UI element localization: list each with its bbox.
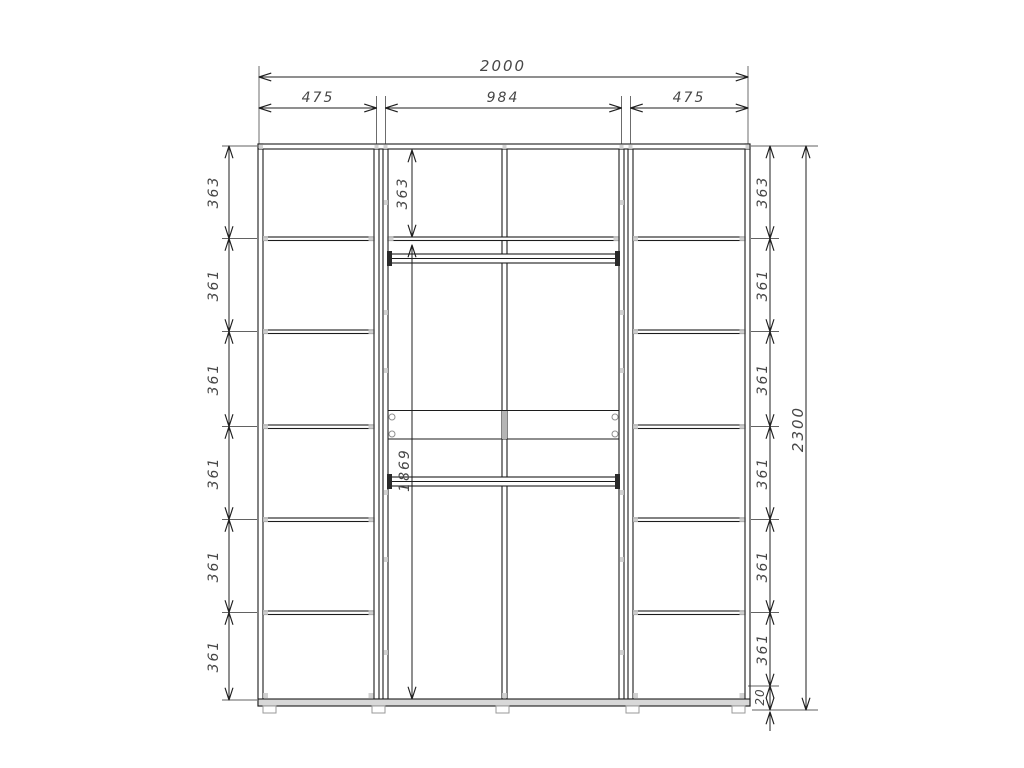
- left-column-shelves: [263, 237, 374, 615]
- drawing-canvas: 2000 475 984 475 363 361 361 361 361 361…: [0, 0, 1024, 768]
- dim-label-left-4: 361: [206, 457, 222, 490]
- middle-left-panel: [383, 149, 388, 699]
- right-column-left-panel: [628, 149, 633, 699]
- dim-label-right-4: 361: [755, 457, 771, 490]
- dim-label-right-1: 363: [755, 176, 771, 209]
- dim-label-right-5: 361: [755, 550, 771, 583]
- dim-label-width-total: 2000: [480, 57, 526, 75]
- dim-label-right-6: 361: [755, 633, 771, 666]
- dim-label-middle-hanging: 1869: [397, 448, 413, 492]
- cam-lock-icon: [389, 431, 395, 437]
- shaded-divider-segment: [502, 411, 507, 439]
- middle-right-panel: [619, 149, 624, 699]
- cabinet-feet: [263, 706, 745, 713]
- dim-label-left-5: 361: [206, 550, 222, 583]
- dim-label-height-total: 2300: [789, 406, 807, 452]
- left-column-right-panel: [374, 149, 379, 699]
- stiffener-band: [388, 411, 619, 440]
- dim-label-left-2: 361: [206, 269, 222, 302]
- dimension-overall-height: 2300: [789, 146, 807, 710]
- dimensions-right-chain: 363 361 361 361 361 361 20: [748, 146, 818, 731]
- dim-label-left-6: 361: [206, 640, 222, 673]
- dimensions-top: 2000 475 984 475: [259, 57, 748, 144]
- dim-label-width-right: 475: [673, 90, 706, 106]
- dim-label-width-middle: 984: [487, 90, 520, 106]
- bottom-panel: [258, 699, 750, 706]
- rod-bracket-right: [615, 251, 620, 266]
- middle-top-shelf: [388, 237, 619, 241]
- cam-lock-icon: [389, 414, 395, 420]
- cabinet-structure: [258, 144, 750, 713]
- rod-bracket-left: [387, 251, 392, 266]
- dim-label-left-1: 363: [206, 176, 222, 209]
- dimensions-left-chain: 363 361 361 361 361 361: [206, 146, 257, 700]
- dim-label-width-left: 475: [302, 90, 335, 106]
- dim-label-bottom-clearance: 20: [753, 688, 767, 705]
- dim-label-left-3: 361: [206, 363, 222, 396]
- dim-label-right-3: 361: [755, 363, 771, 396]
- dim-label-middle-top: 363: [395, 177, 411, 210]
- dim-label-right-2: 361: [755, 269, 771, 302]
- dimensions-middle: 363 1869: [395, 150, 413, 699]
- rod-bracket-right: [615, 474, 620, 489]
- wardrobe-dimension-drawing: 2000 475 984 475 363 361 361 361 361 361…: [0, 0, 1024, 768]
- left-side-panel: [258, 144, 263, 706]
- rod-bracket-left: [387, 474, 392, 489]
- cam-lock-icon: [612, 414, 618, 420]
- right-column-shelves: [633, 237, 745, 615]
- right-side-panel: [745, 144, 750, 706]
- cam-lock-icon: [612, 431, 618, 437]
